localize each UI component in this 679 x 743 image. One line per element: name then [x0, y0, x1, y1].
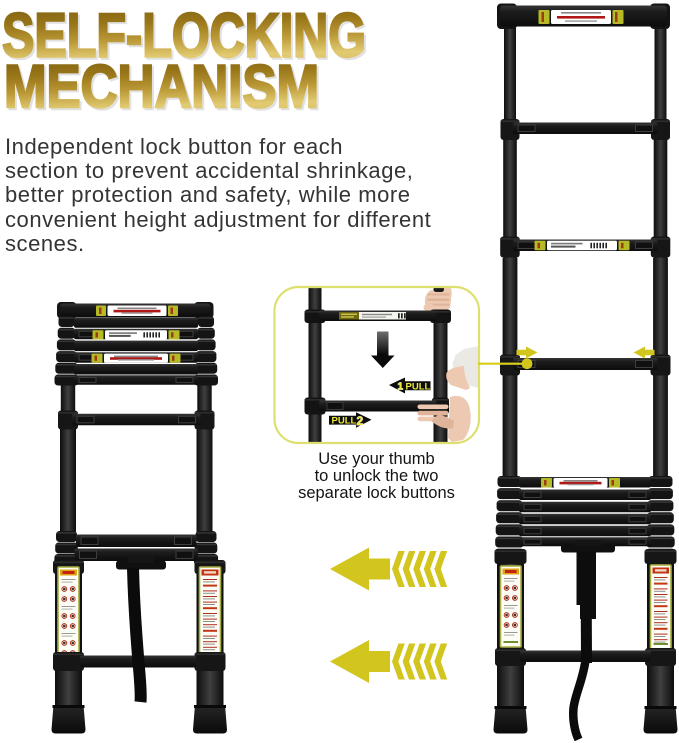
svg-text:2: 2 [357, 414, 364, 428]
svg-text:PULL: PULL [332, 415, 357, 426]
svg-text:1: 1 [398, 382, 404, 393]
svg-text:MECHANISM: MECHANISM [4, 52, 319, 120]
svg-text:PULL: PULL [406, 381, 431, 392]
